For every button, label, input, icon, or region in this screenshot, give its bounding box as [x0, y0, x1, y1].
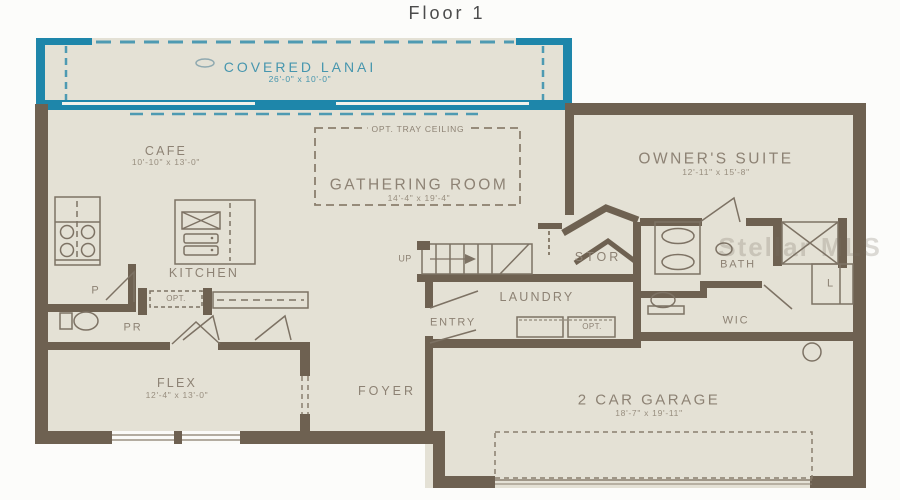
pantry-label: P [91, 286, 100, 297]
mls-watermark: Stellar MLS [718, 234, 882, 260]
lanai-label: COVERED LANAI [224, 60, 377, 74]
gathering-room-label: GATHERING ROOM [330, 177, 509, 193]
cafe-dims: 10'-10" x 13'-0" [132, 158, 200, 167]
page-title: Floor 1 [408, 4, 485, 22]
entry-label: ENTRY [430, 318, 476, 329]
garage-label: 2 CAR GARAGE [578, 393, 721, 408]
foyer-label: FOYER [358, 385, 416, 398]
flex-label: FLEX [157, 377, 197, 390]
floorplan-page: Floor 1 COVERED LANAI 26'-0" x 10'-0" CA… [0, 0, 900, 500]
storage-label: STOR [575, 251, 622, 264]
wic-label: WIC [723, 316, 750, 327]
laundry-opt-label: OPT. [582, 323, 601, 331]
owners-suite-label: OWNER'S SUITE [638, 151, 793, 167]
garage-dims: 18'-7" x 19'-11" [615, 409, 683, 418]
cafe-label: CAFE [145, 145, 187, 158]
laundry-label: LAUNDRY [500, 291, 575, 304]
tray-ceiling-note: OPT. TRAY CEILING [368, 125, 469, 134]
kitchen-label: KITCHEN [169, 267, 239, 280]
stairs [417, 241, 532, 274]
powder-room-label: PR [124, 323, 143, 334]
owners-suite-dims: 12'-11" x 15'-8" [682, 168, 750, 177]
gathering-room-dims: 14'-4" x 19'-4" [388, 194, 451, 203]
linen-label: L [827, 279, 835, 290]
stairs-up-label: UP [398, 255, 411, 264]
kitchen-opt-label: OPT. [166, 295, 185, 303]
flex-dims: 12'-4" x 13'-0" [146, 391, 209, 400]
lanai-dims: 26'-0" x 10'-0" [269, 75, 332, 84]
